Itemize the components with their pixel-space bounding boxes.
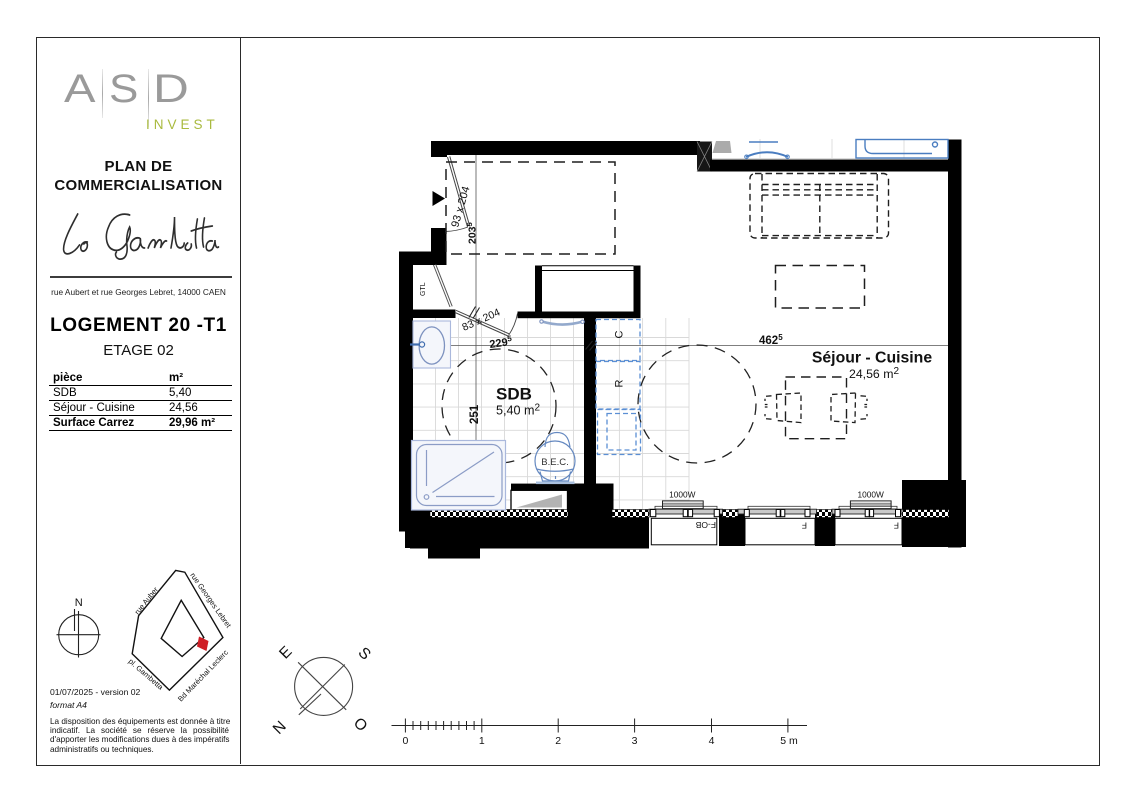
svg-text:2295: 2295 [488,334,513,351]
svg-text:E: E [276,643,295,662]
svg-text:SDB: SDB [496,385,532,404]
svg-text:5,40 m2: 5,40 m2 [496,403,541,418]
svg-text:B.E.C.: B.E.C. [541,457,568,468]
svg-text:4625: 4625 [759,333,783,347]
svg-text:5 m: 5 m [780,735,798,747]
svg-text:F-OB: F-OB [695,520,716,530]
svg-text:24,56 m2: 24,56 m2 [849,366,899,381]
svg-text:GTL: GTL [420,282,427,296]
svg-text:C: C [614,331,626,339]
svg-text:251: 251 [469,404,481,424]
svg-text:N: N [270,718,290,738]
svg-text:0: 0 [402,735,408,747]
svg-text:1000W: 1000W [669,490,695,500]
svg-text:F: F [802,520,807,530]
svg-text:F: F [894,520,899,530]
svg-text:R: R [614,380,626,388]
svg-text:Séjour - Cuisine: Séjour - Cuisine [812,350,932,367]
svg-text:2035: 2035 [465,222,479,244]
svg-text:S: S [355,644,374,663]
svg-text:2: 2 [555,735,561,747]
svg-text:O: O [350,715,371,736]
svg-text:4: 4 [709,735,715,747]
svg-text:3: 3 [632,735,638,747]
svg-text:1: 1 [479,735,485,747]
svg-text:1000W: 1000W [858,490,884,500]
